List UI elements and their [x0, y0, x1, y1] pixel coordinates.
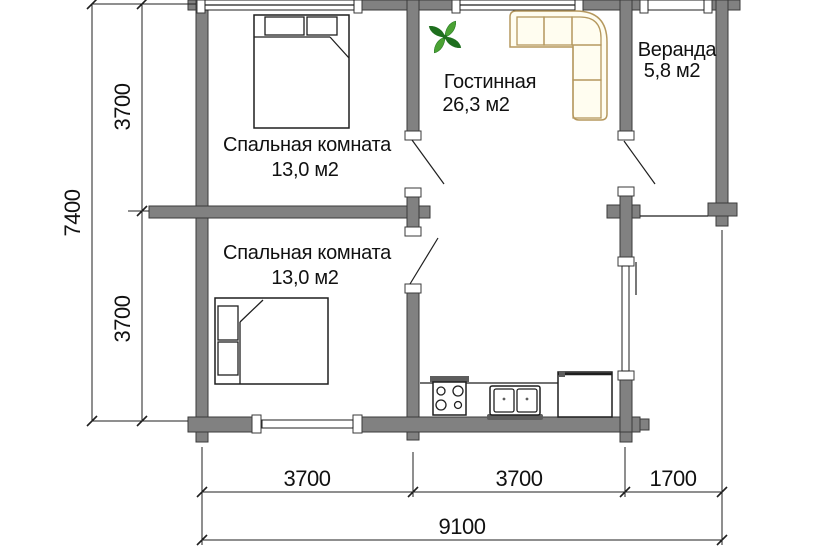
sofa-outline [510, 11, 607, 120]
door-jamb [405, 131, 421, 140]
door-jamb [405, 227, 421, 236]
wall-segment [407, 0, 419, 132]
stove-back-panel [430, 376, 469, 382]
wall-segment [196, 0, 208, 438]
wall-segment [196, 432, 208, 442]
room-area-living: 26,3 м2 [442, 94, 509, 116]
sink-drain [526, 398, 529, 401]
window-jamb [618, 371, 634, 380]
door-swing [412, 140, 444, 184]
window-glazing [622, 266, 629, 371]
door-bedroom2 [405, 227, 438, 293]
plant-center [443, 35, 447, 39]
window-jamb [640, 0, 648, 13]
dim-label-bottom-seg3: 1700 [650, 466, 697, 491]
door-jamb [405, 188, 421, 197]
wall-segment [407, 292, 419, 432]
corner-sofa-icon [510, 11, 607, 120]
window-top-veranda [640, 0, 712, 13]
door-jamb [618, 187, 634, 196]
dim-label-bottom-seg2: 3700 [496, 466, 543, 491]
room-label-bedroom2: Спальная комната [223, 242, 392, 264]
wall-segment [620, 380, 632, 432]
double-sink-icon [487, 386, 543, 420]
room-area-veranda: 5,8 м2 [644, 60, 701, 82]
door-veranda [618, 131, 655, 196]
wall-segment [620, 432, 632, 442]
window-jamb [618, 257, 634, 266]
door-jamb [405, 284, 421, 293]
sink-drain [503, 398, 506, 401]
room-area-bedroom2: 13,0 м2 [271, 267, 338, 289]
kitchen-counter-icon [558, 371, 612, 417]
door-swing [624, 141, 655, 184]
kitchen-fixtures [420, 371, 612, 420]
wall-segment [407, 432, 419, 440]
room-label-veranda: Веранда [638, 39, 718, 61]
window-jamb [353, 415, 362, 433]
door-jamb [618, 131, 634, 140]
wall-segment [708, 203, 737, 216]
counter-outline [558, 372, 612, 417]
window-glazing [648, 0, 704, 10]
dim-label-left-total: 7400 [60, 189, 85, 236]
room-area-bedroom1: 13,0 м2 [271, 159, 338, 181]
window-jamb [252, 415, 261, 433]
wall-segment [716, 216, 728, 226]
wall-segment [640, 419, 649, 430]
double-bed-icon [215, 298, 328, 384]
stove-icon [430, 376, 469, 415]
window-jamb [704, 0, 712, 13]
room-label-bedroom1: Спальная комната [223, 134, 392, 156]
wall-segment [716, 0, 728, 216]
wall-segment [620, 0, 632, 132]
wall-segment [188, 417, 253, 432]
dim-label-bottom-seg1: 3700 [284, 466, 331, 491]
sink-outline [490, 386, 540, 415]
dim-label-left-upper: 3700 [110, 83, 135, 130]
bed-outline [215, 298, 328, 384]
window-jamb [197, 0, 205, 13]
floor-plan-canvas: 7400 3700 3700 3700 3700 1700 9100 Спаль… [0, 0, 825, 550]
counter-corner-mark [559, 371, 565, 377]
bed-outline [254, 15, 349, 128]
wall-segment [632, 205, 640, 218]
wall-segment [620, 196, 632, 258]
plant-icon [428, 20, 463, 55]
wall-segment [149, 206, 430, 218]
window-kitchen-east [618, 257, 636, 380]
window-bottom-bedroom2 [252, 415, 362, 433]
floor-plan-svg: 7400 3700 3700 3700 3700 1700 9100 Спаль… [0, 0, 825, 550]
wall-segment [607, 205, 620, 218]
double-bed-icon [254, 15, 349, 128]
door-swing [410, 238, 438, 284]
window-jamb [354, 0, 362, 13]
room-label-living: Гостинная [444, 71, 536, 93]
door-bedroom1 [405, 131, 444, 197]
window-jamb [452, 0, 460, 13]
window-top-bedroom1 [197, 0, 362, 13]
window-glazing [262, 420, 353, 428]
dim-label-left-lower: 3700 [110, 295, 135, 342]
dim-label-bottom-total: 9100 [439, 514, 486, 539]
